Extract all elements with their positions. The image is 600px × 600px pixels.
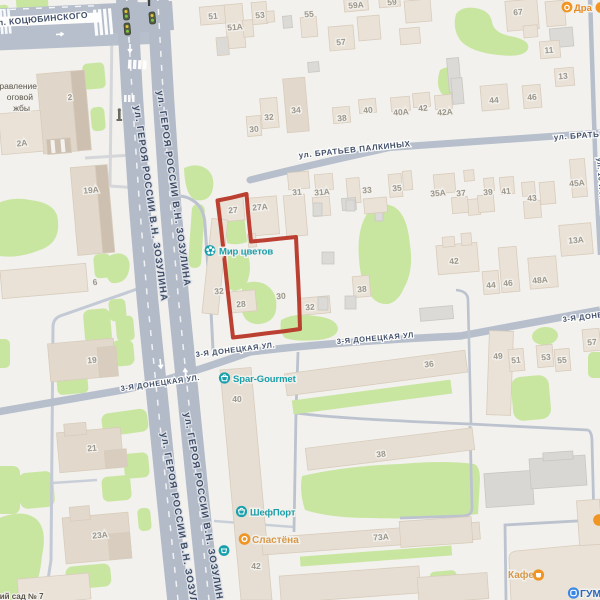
svg-text:49: 49	[493, 351, 504, 362]
svg-text:38: 38	[376, 448, 387, 459]
svg-text:Spar-Gourmet: Spar-Gourmet	[233, 374, 297, 385]
svg-text:38: 38	[337, 113, 348, 124]
svg-text:32: 32	[264, 112, 275, 123]
svg-text:73А: 73А	[373, 531, 389, 542]
svg-text:жбы: жбы	[13, 103, 30, 113]
svg-text:51А: 51А	[227, 21, 243, 32]
svg-text:40: 40	[232, 394, 242, 404]
svg-text:31: 31	[292, 187, 303, 198]
svg-text:оговой: оговой	[7, 92, 34, 102]
svg-text:51: 51	[511, 355, 522, 366]
svg-text:Кафе: Кафе	[508, 569, 534, 581]
svg-text:44: 44	[489, 95, 500, 106]
svg-text:23А: 23А	[92, 529, 108, 540]
svg-text:13: 13	[558, 71, 569, 82]
svg-text:13А: 13А	[568, 234, 584, 245]
svg-text:35: 35	[392, 183, 403, 194]
svg-text:правление: правление	[0, 81, 37, 91]
svg-text:43: 43	[527, 193, 538, 204]
svg-text:19А: 19А	[83, 184, 99, 195]
svg-text:45А: 45А	[569, 177, 585, 188]
svg-text:30: 30	[249, 124, 260, 135]
svg-text:42: 42	[251, 561, 261, 571]
svg-text:31А: 31А	[314, 186, 330, 197]
svg-text:44: 44	[486, 280, 497, 291]
svg-text:2А: 2А	[16, 138, 28, 149]
svg-text:32: 32	[305, 302, 316, 313]
svg-text:53: 53	[255, 10, 266, 21]
svg-text:19: 19	[87, 355, 98, 366]
svg-text:59: 59	[387, 0, 398, 7]
svg-text:21: 21	[87, 443, 98, 454]
svg-text:Мир цветов: Мир цветов	[219, 247, 273, 258]
svg-text:42: 42	[418, 103, 429, 114]
svg-text:55: 55	[304, 9, 315, 20]
svg-text:42А: 42А	[437, 106, 453, 117]
svg-text:27А: 27А	[252, 201, 268, 212]
svg-text:36: 36	[424, 358, 435, 369]
svg-text:ГУМ: ГУМ	[580, 588, 600, 600]
svg-text:30: 30	[276, 291, 287, 302]
svg-text:40: 40	[363, 105, 374, 116]
svg-text:ШефПорт: ШефПорт	[250, 508, 296, 519]
svg-text:57: 57	[336, 37, 347, 48]
svg-text:27: 27	[228, 205, 239, 216]
svg-text:57: 57	[587, 337, 598, 348]
svg-text:34: 34	[291, 105, 302, 116]
svg-text:32: 32	[214, 286, 225, 297]
svg-text:детский сад № 7: детский сад № 7	[0, 592, 44, 600]
svg-text:Дра: Дра	[574, 3, 593, 14]
svg-text:59А: 59А	[348, 0, 364, 11]
svg-text:39: 39	[483, 187, 494, 198]
svg-text:Сластёна: Сластёна	[252, 535, 299, 546]
svg-text:67: 67	[513, 7, 524, 18]
svg-text:55: 55	[557, 355, 568, 366]
svg-text:11: 11	[544, 45, 554, 56]
svg-text:53: 53	[541, 352, 552, 363]
svg-text:51: 51	[208, 11, 219, 22]
svg-text:46: 46	[527, 92, 538, 103]
svg-text:42: 42	[449, 256, 460, 267]
svg-text:40А: 40А	[393, 106, 409, 117]
svg-text:38: 38	[357, 284, 368, 295]
svg-text:33: 33	[362, 185, 373, 196]
svg-text:46: 46	[503, 278, 514, 289]
svg-text:37: 37	[456, 188, 467, 199]
svg-text:28: 28	[236, 299, 247, 310]
svg-text:41: 41	[501, 186, 512, 197]
svg-text:48А: 48А	[532, 274, 548, 285]
svg-text:35А: 35А	[430, 187, 446, 198]
